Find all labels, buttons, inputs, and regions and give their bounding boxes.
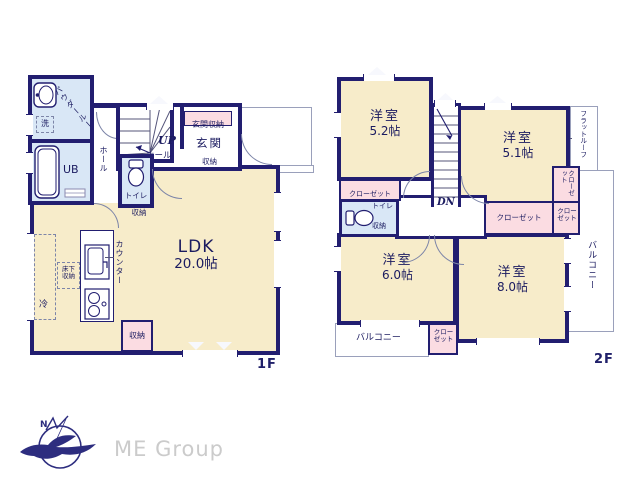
staircase-2f xyxy=(434,106,458,204)
closet-52-label: クローゼット xyxy=(349,190,391,198)
stairs-up-label: UP xyxy=(158,135,176,147)
room-51-label: 洋室 5.1帖 xyxy=(478,132,558,160)
closet-hall-wide-label: クローゼット xyxy=(497,213,542,222)
room-52-label: 洋室 5.2帖 xyxy=(345,110,425,138)
room-51-name: 洋室 xyxy=(478,132,558,147)
counter-tick xyxy=(105,257,114,258)
room-52-name: 洋室 xyxy=(345,110,425,125)
room-60-label: 洋室 6.0帖 xyxy=(355,254,440,282)
washbasin-icon xyxy=(33,82,57,108)
window xyxy=(334,112,341,138)
fridge-label: 冷 xyxy=(39,300,48,310)
ldk-storage-label: 収納 xyxy=(129,331,145,340)
window xyxy=(26,114,33,136)
entrance-storage-box: 玄関収納 xyxy=(184,111,232,126)
compass-north-label: N xyxy=(40,420,48,430)
room-80-name: 洋室 xyxy=(470,266,555,281)
closet-51-box: クローゼット xyxy=(552,166,580,204)
entrance-closet-label: 収納 xyxy=(202,158,217,166)
underfloor-storage-label: 床下収納 xyxy=(59,266,78,281)
toilet-storage-label-2f: 収納 xyxy=(372,223,386,231)
floorplan-canvas: LDK 20.0帖 パウダールーム 洗 UB ホール UP ホール xyxy=(0,0,640,480)
flat-roof-label: フラットルーフ xyxy=(578,110,586,170)
stairs-down-label: DN xyxy=(437,197,455,208)
window xyxy=(564,238,571,264)
window xyxy=(26,152,33,174)
window xyxy=(274,240,281,288)
washer-label: 洗 xyxy=(41,120,49,129)
closet-51-label: クローゼット xyxy=(559,170,574,200)
ldk-label: LDK 20.0帖 xyxy=(160,238,232,272)
window xyxy=(476,338,540,345)
ldk-size: 20.0帖 xyxy=(160,257,232,272)
room-51-size: 5.1帖 xyxy=(478,147,558,160)
toilet-label-1f: トイレ xyxy=(120,192,152,200)
window xyxy=(363,74,395,81)
hall-side-label: ホール xyxy=(98,146,107,190)
closet-hall-small-box: クローゼット xyxy=(552,201,580,235)
compass-logo-icon: N xyxy=(16,414,108,472)
room-80-label: 洋室 8.0帖 xyxy=(470,266,555,294)
toilet-icon-1f xyxy=(126,159,146,187)
window xyxy=(146,103,174,110)
window xyxy=(182,350,238,357)
window xyxy=(274,192,281,232)
balcony-south-label: バルコニー xyxy=(356,333,401,343)
window-marker xyxy=(368,67,386,75)
room-60-size: 6.0帖 xyxy=(355,269,440,282)
company-name: ME Group xyxy=(114,438,224,462)
bath-door-icon xyxy=(64,188,86,198)
balcony-east-label: バルコニー xyxy=(586,240,596,304)
window xyxy=(484,103,512,110)
closet-hall-wide-box: クローゼット xyxy=(484,201,554,235)
entrance-storage-label: 玄関収納 xyxy=(192,120,224,129)
toilet-storage-label-1f: 収納 xyxy=(123,209,155,217)
unit-bath-label: UB xyxy=(63,164,79,176)
stairwell-2f xyxy=(431,103,461,207)
window xyxy=(334,246,341,272)
window-marker xyxy=(489,96,506,103)
closet-hall-small-label: クローゼット xyxy=(556,208,578,223)
room-52-size: 5.2帖 xyxy=(345,125,425,138)
window-marker xyxy=(438,93,453,100)
ldk-name: LDK xyxy=(160,238,232,257)
counter-label: カウンター xyxy=(114,240,123,300)
toilet-label-2f: トイレ xyxy=(372,203,393,211)
floor1-label: 1F xyxy=(257,357,277,372)
ldk-storage-box: 収納 xyxy=(121,320,153,352)
window xyxy=(564,286,571,312)
bird-glyph xyxy=(20,435,96,458)
toilet-icon-2f xyxy=(345,206,375,230)
window xyxy=(360,320,420,327)
stove-icon xyxy=(84,288,110,320)
window-marker xyxy=(150,96,168,104)
closet-60-box: クローゼット xyxy=(428,323,458,355)
window xyxy=(434,100,456,107)
kitchen-sink-icon xyxy=(84,244,110,280)
closet-60-label: クローゼット xyxy=(432,329,455,344)
floor2-label: 2F xyxy=(594,352,614,367)
entrance-label: 玄関 xyxy=(196,137,223,150)
window xyxy=(27,233,34,321)
closet-52-box: クローゼット xyxy=(339,179,401,201)
room-80-size: 8.0帖 xyxy=(470,281,555,294)
room-60-name: 洋室 xyxy=(355,254,440,269)
bathtub-icon xyxy=(34,145,60,199)
